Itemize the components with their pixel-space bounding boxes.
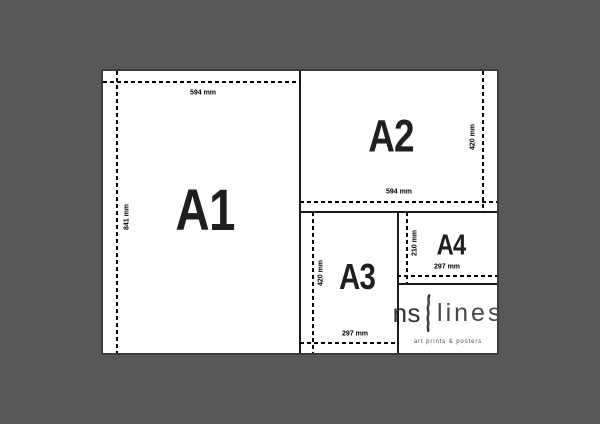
a4-height-label: 210 mm: [412, 230, 419, 256]
a4-width-label: 297 mm: [434, 264, 460, 271]
sheet-label-a2: A2: [368, 114, 414, 159]
logo-wordmark: ns lines: [393, 293, 504, 333]
a2-width-label: 594 mm: [386, 189, 412, 196]
logo: ns lines art prints & posters: [399, 285, 497, 353]
paper-size-diagram: A1 A2 A3 A4 594 mm 841 mm 594 mm 420 mm …: [101, 69, 499, 355]
logo-tagline: art prints & posters: [414, 339, 482, 345]
a2-width-dashline: [300, 201, 497, 203]
sheet-label-a4: A4: [437, 232, 466, 261]
a1-width-dashline: [103, 81, 300, 83]
sheet-label-a1: A1: [175, 182, 234, 240]
a4-width-dashline: [397, 275, 497, 277]
a3-width-dashline: [300, 342, 397, 344]
a1-height-dashline: [116, 71, 118, 353]
sheet-label-a3: A3: [339, 259, 375, 295]
a2-height-label: 420 mm: [470, 124, 477, 150]
a1-width-label: 594 mm: [190, 90, 216, 97]
a3-height-label: 420 mm: [318, 260, 325, 286]
a3-height-dashline: [312, 212, 314, 353]
logo-text-ns: ns: [393, 300, 421, 326]
brush-stroke-icon: [424, 294, 433, 332]
a3-width-label: 297 mm: [342, 331, 368, 338]
a1-height-label: 841 mm: [124, 204, 131, 230]
logo-text-lines: lines: [437, 301, 503, 326]
a4-height-dashline: [406, 212, 408, 283]
a2-height-dashline: [482, 71, 484, 212]
page-background: A1 A2 A3 A4 594 mm 841 mm 594 mm 420 mm …: [0, 0, 600, 424]
